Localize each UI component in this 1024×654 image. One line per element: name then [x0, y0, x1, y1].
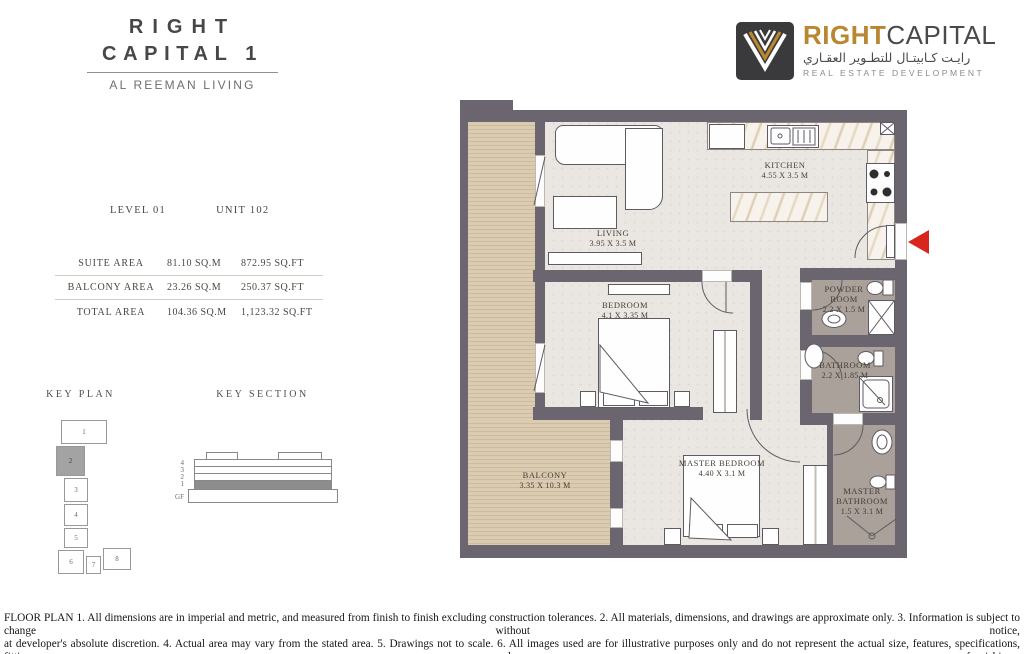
room-name: BEDROOM [575, 300, 675, 310]
key-plan-unit-8: 8 [103, 548, 131, 570]
master-bed-fold [689, 498, 731, 540]
room-dims: 2.2 X 1.5 M [818, 305, 870, 315]
key-plan-unit-5: 5 [64, 528, 88, 548]
table-row: TOTAL AREA 104.36 SQ.M 1,123.32 SQ.FT [55, 300, 323, 324]
entrance-door-arc [855, 226, 886, 258]
logo-tagline: REAL ESTATE DEVELOPMENT [803, 68, 981, 78]
area-row-label: SUITE AREA [55, 258, 167, 269]
bed-fold-triangles [600, 345, 731, 540]
company-logo: RIGHTCAPITAL رايـت كـابيتـال للتطـوير ال… [736, 22, 981, 80]
key-section-title: KEY SECTION [215, 389, 310, 400]
key-plan-unit-7: 7 [86, 556, 101, 574]
unit-info-row: LEVEL 01 UNIT 102 [55, 205, 320, 216]
area-row-sqm: 104.36 SQ.M [167, 307, 241, 318]
key-plan-unit-6: 6 [58, 550, 84, 574]
powder-sink-basin [828, 315, 840, 323]
floor-plan-drawing: LIVING 3.95 X 3.5 M KITCHEN 4.55 X 3.5 M… [455, 88, 933, 566]
room-dims: 4.55 X 3.5 M [725, 171, 845, 181]
bedroom-slider-leaf [534, 345, 545, 391]
title-divider [87, 72, 278, 73]
disclaimer-line-1: FLOOR PLAN 1. All dimensions are in impe… [4, 612, 1020, 638]
room-name: MASTER BEDROOM [662, 458, 782, 468]
logo-brand-dark: CAPITAL [886, 20, 996, 50]
key-plan-diagram: 1 2 3 4 5 6 7 8 [55, 418, 145, 568]
logo-arabic-text: رايـت كـابيتـال للتطـوير العقـاري [803, 50, 981, 65]
bedroom-door-arc [702, 282, 733, 313]
logo-brand-gold: RIGHT [803, 20, 886, 50]
room-name: BATHROOM [800, 360, 890, 370]
shower-inner [863, 380, 889, 408]
balcony-label: BALCONY 3.35 X 10.3 M [495, 470, 595, 491]
shaft-cross-marks [869, 123, 894, 334]
room-name: POWDER ROOM [818, 284, 870, 304]
master-shower-line [872, 519, 896, 536]
project-title-line2: CAPITAL 1 [85, 43, 280, 66]
room-name: BALCONY [495, 470, 595, 480]
kitchen-label: KITCHEN 4.55 X 3.5 M [725, 160, 845, 181]
key-section-floor-1: 1 [170, 480, 184, 488]
powder-room-label: POWDER ROOM 2.2 X 1.5 M [818, 284, 870, 315]
key-section-floor-gf: GF [170, 493, 184, 501]
level-label: LEVEL 01 [110, 205, 166, 216]
logo-brand-name: RIGHTCAPITAL [803, 22, 981, 48]
project-subtitle: AL REEMAN LIVING [85, 78, 280, 92]
disclaimer-text: FLOOR PLAN 1. All dimensions are in impe… [4, 612, 1020, 654]
living-room-label: LIVING 3.95 X 3.5 M [563, 228, 663, 249]
project-title-block: RIGHT CAPITAL 1 AL REEMAN LIVING [85, 16, 280, 92]
room-dims: 3.95 X 3.5 M [563, 239, 663, 249]
room-dims: 3.35 X 10.3 M [495, 481, 595, 491]
area-row-label: TOTAL AREA [55, 307, 167, 318]
master-bedroom-label: MASTER BEDROOM 4.40 X 3.1 M [662, 458, 782, 479]
master-bathroom-label: MASTER BATHROOM 1.5 X 3.1 M [831, 486, 893, 517]
key-section-diagram: 4 3 2 1 GF [170, 450, 345, 512]
master-shower-line [847, 516, 872, 536]
logo-text-block: RIGHTCAPITAL رايـت كـابيتـال للتطـوير ال… [803, 22, 981, 80]
sink-basin [771, 128, 790, 144]
area-table: SUITE AREA 81.10 SQ.M 872.95 SQ.FT BALCO… [55, 252, 323, 324]
room-name: KITCHEN [725, 160, 845, 170]
key-plan-title: KEY PLAN [38, 389, 123, 400]
sink-drain-icon [778, 134, 782, 138]
powder-toilet-tank [883, 280, 893, 295]
project-title-line1: RIGHT [85, 16, 280, 39]
key-plan-unit-1: 1 [61, 420, 107, 444]
chevron-glyph [736, 22, 794, 80]
area-row-sqft: 872.95 SQ.FT [241, 258, 323, 269]
key-plan-unit-3: 3 [64, 478, 88, 502]
bedroom-label: BEDROOM 4.1 X 3.35 M [575, 300, 675, 321]
key-plan-unit-2-highlighted: 2 [56, 446, 85, 476]
master-bedroom-door-arc [747, 409, 800, 462]
room-dims: 4.40 X 3.1 M [662, 469, 782, 479]
master-sink [872, 430, 892, 454]
area-row-sqm: 81.10 SQ.M [167, 258, 241, 269]
area-row-label: BALCONY AREA [55, 282, 167, 293]
room-dims: 2.2 X 1.85 M [800, 371, 890, 381]
floor-plan-page: RIGHT CAPITAL 1 AL REEMAN LIVING RIGHTCA… [0, 0, 1024, 654]
key-plan-unit-4: 4 [64, 504, 88, 526]
room-dims: 4.1 X 3.35 M [575, 311, 675, 321]
living-slider-leaf [534, 157, 545, 205]
stove-burner-icons [870, 170, 892, 197]
room-name: MASTER BATHROOM [831, 486, 893, 506]
logo-chevron-icon [736, 22, 794, 80]
room-name: LIVING [563, 228, 663, 238]
area-row-sqft: 1,123.32 SQ.FT [241, 307, 323, 318]
table-row: BALCONY AREA 23.26 SQ.M 250.37 SQ.FT [55, 276, 323, 300]
table-row: SUITE AREA 81.10 SQ.M 872.95 SQ.FT [55, 252, 323, 276]
disclaimer-line-2: at developer's absolute discretion. 4. A… [4, 638, 1020, 654]
bedroom-bed-fold [600, 345, 648, 403]
master-bathroom-door-arc [834, 425, 863, 455]
area-row-sqft: 250.37 SQ.FT [241, 282, 323, 293]
bathroom-label: BATHROOM 2.2 X 1.85 M [800, 360, 890, 381]
area-row-sqm: 23.26 SQ.M [167, 282, 241, 293]
entrance-arrow-icon [908, 230, 929, 254]
room-dims: 1.5 X 3.1 M [831, 507, 893, 517]
unit-label: UNIT 102 [216, 205, 269, 216]
key-section-ground-floor [188, 489, 338, 503]
